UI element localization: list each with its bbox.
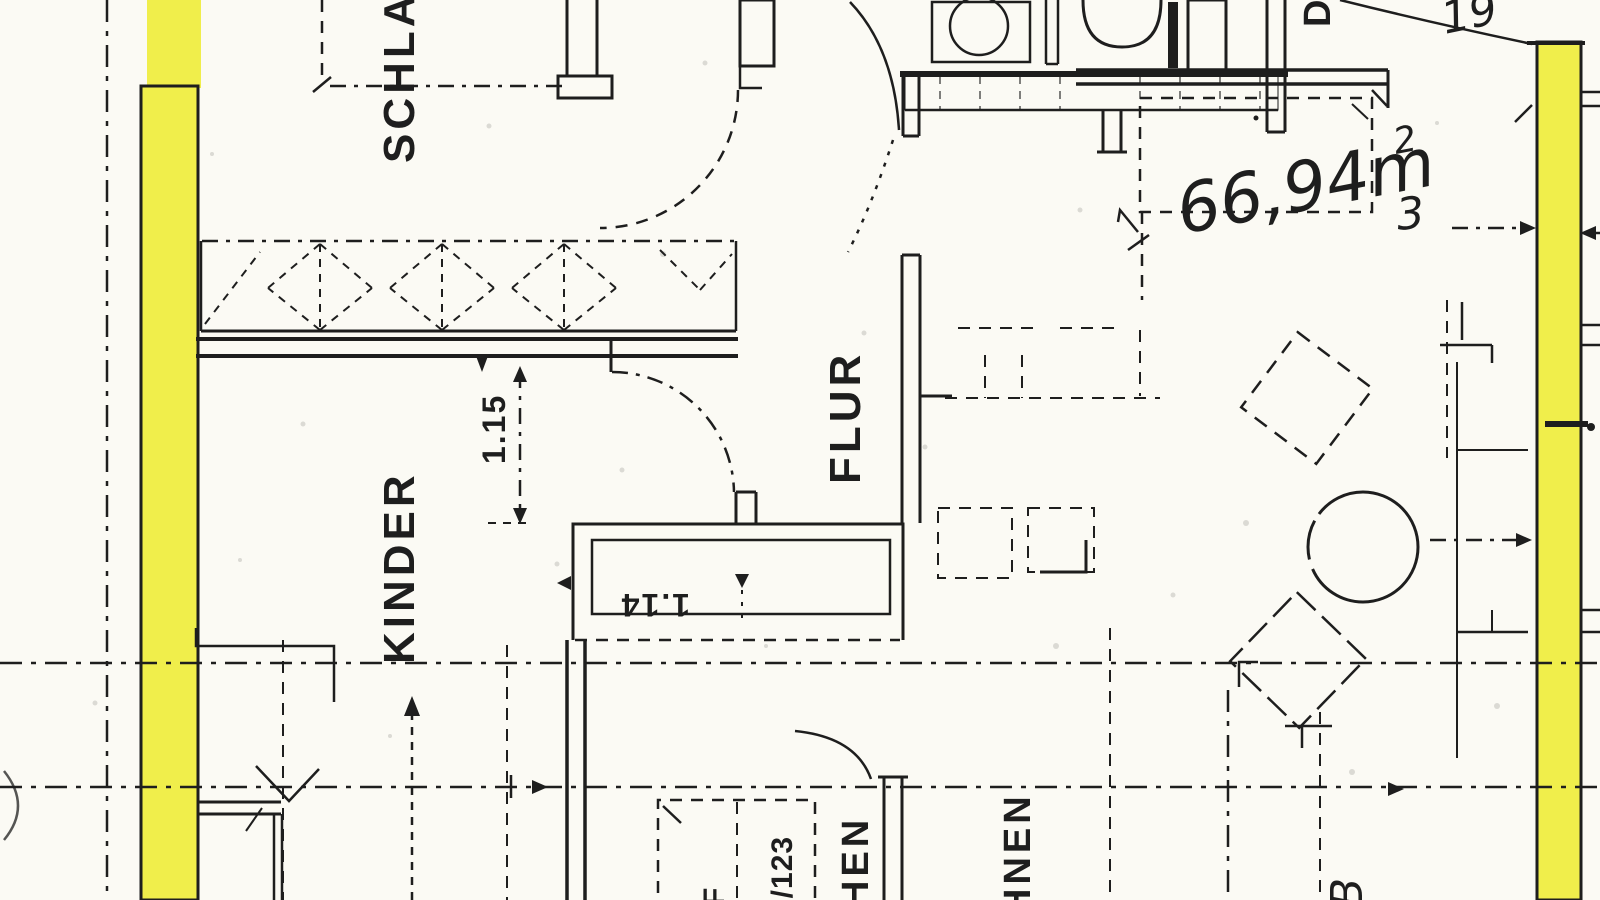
room-label-kochen-partial: HEN	[835, 816, 877, 900]
handwritten-note-window: 3	[1394, 187, 1427, 241]
floor-plan-scan: 1.15 1.14	[0, 0, 1600, 900]
plan-ref-letter: F	[698, 887, 731, 900]
dimension-label-1-15: 1.15	[476, 394, 512, 464]
plan-ref-number: 5/123	[766, 836, 799, 900]
dimension-label-1-14: 1.14	[620, 587, 690, 623]
wall-pier	[1168, 2, 1178, 68]
room-label-kinder: KINDER	[375, 471, 424, 664]
paper-background	[0, 0, 1600, 900]
floor-plan-drawing: 1.15 1.14	[0, 0, 1600, 900]
right-exterior-wall	[1537, 42, 1581, 900]
handwritten-note-bottom-right: B	[1322, 878, 1373, 900]
room-label-wohnen-partial: HNEN	[997, 792, 1039, 900]
room-label-schlaf: SCHLAF	[375, 0, 424, 163]
room-label-flur: FLUR	[821, 351, 870, 484]
dimension-dot	[1587, 423, 1595, 431]
left-wall-highlight-top	[147, 0, 201, 88]
room-label-top-right-partial: D	[1297, 0, 1339, 27]
left-exterior-wall	[141, 86, 198, 900]
